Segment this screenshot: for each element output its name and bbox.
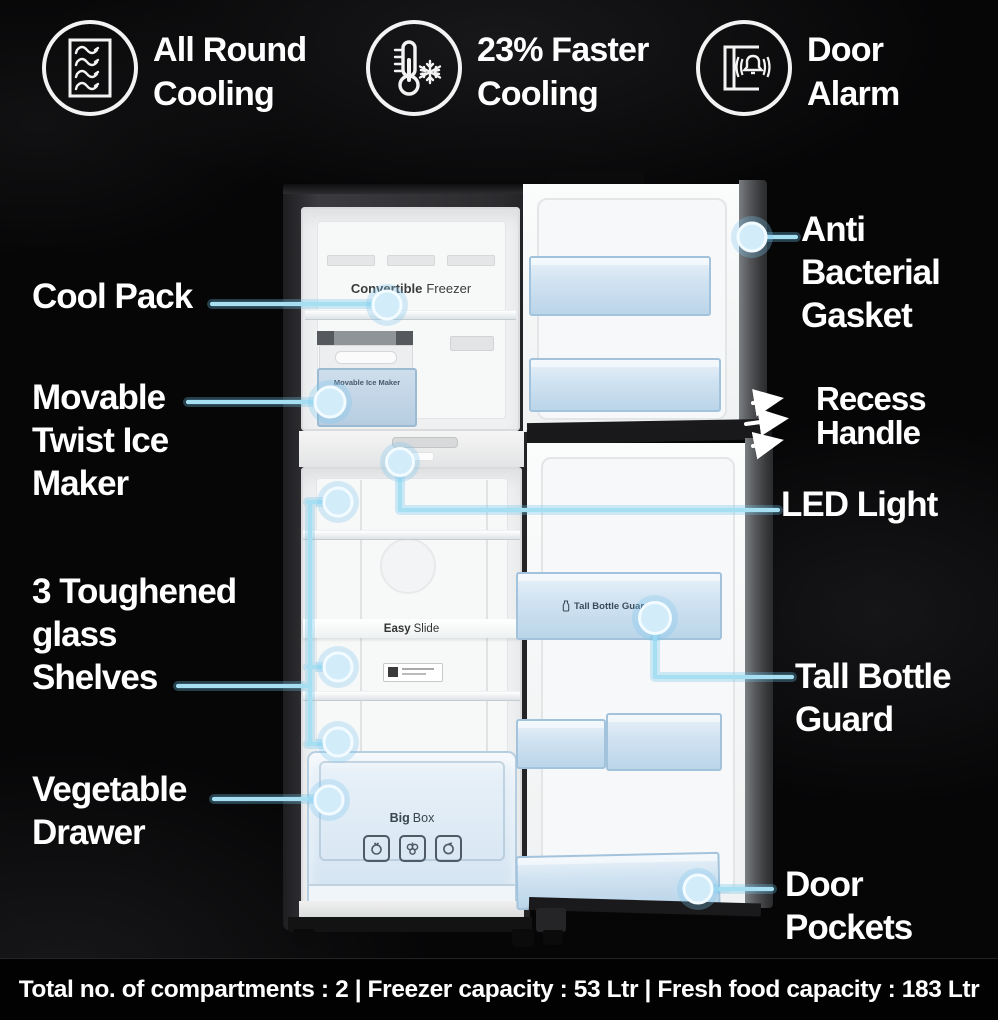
freezer-side-tray (450, 336, 494, 351)
energy-sticker (383, 663, 443, 682)
feature-line: All Round (153, 28, 306, 72)
freezer-door-gasket-edge (739, 180, 767, 434)
callout-line: Maker (32, 462, 168, 505)
drawer-icons-row (309, 835, 515, 862)
feature-line: Alarm (807, 72, 899, 116)
door-alarm-icon (696, 20, 792, 116)
feature-label: Door Alarm (807, 20, 899, 116)
tomato-icon (363, 835, 390, 862)
callout-vegetable-drawer: Vegetable Drawer (32, 768, 186, 854)
fan-cover (380, 538, 436, 594)
callout-line: Cool Pack (32, 275, 192, 318)
ice-maker-label: Movable Ice Maker (334, 378, 400, 387)
feature-label: All Round Cooling (153, 20, 306, 116)
callout-tall-bottle-guard: Tall Bottle Guard (795, 655, 951, 741)
tall-bottle-guard-print: Tall Bottle Guard (562, 600, 650, 612)
ice-maker-handle (335, 351, 397, 364)
feature-line: Cooling (153, 72, 306, 116)
ice-maker-tray: Movable Ice Maker (317, 368, 417, 427)
callout-line: Drawer (32, 811, 186, 854)
convertible-freezer-label: ConvertibleFreezer (306, 281, 516, 296)
fridge-door-gasket-edge (745, 438, 773, 908)
orange-icon (435, 835, 462, 862)
freezer-vent (447, 255, 495, 266)
glass-shelf-3 (303, 691, 520, 701)
fridge-door-open (527, 443, 747, 905)
tall-bottle-guard-pocket: Tall Bottle Guard (516, 572, 722, 640)
callout-line: Door (785, 863, 912, 906)
callout-line: Tall Bottle (795, 655, 951, 698)
ice-maker-frame-corner (317, 331, 334, 345)
feature-all-round-cooling: All Round Cooling (42, 20, 306, 116)
callout-line: Gasket (801, 294, 940, 337)
callout-line: glass (32, 613, 236, 656)
vegetable-drawer: BigBox (307, 751, 517, 906)
airflow-grid-icon (42, 20, 138, 116)
ice-maker-frame-corner (396, 331, 413, 345)
callout-line: Shelves (32, 656, 236, 699)
feature-line: Cooling (477, 72, 649, 116)
callout-line: LED Light (781, 483, 937, 526)
callout-line: Vegetable (32, 768, 186, 811)
easy-slide-label-bold: Easy (384, 623, 411, 635)
thermometer-snowflake-icon (366, 20, 462, 116)
feature-label: 23% Faster Cooling (477, 20, 649, 116)
glass-shelf-1 (303, 530, 520, 540)
door-hinge-bottom (536, 908, 566, 932)
spec-summary-text: Total no. of compartments : 2 | Freezer … (19, 976, 980, 1004)
ice-maker: Movable Ice Maker (317, 331, 413, 425)
callout-line: Bacterial (801, 251, 940, 294)
spec-summary-bar: Total no. of compartments : 2 | Freezer … (0, 958, 998, 1020)
callout-line: Handle (816, 416, 926, 450)
fridge-foot (293, 929, 315, 947)
easy-slide-shelf: EasySlide (303, 619, 520, 638)
callout-anti-bacterial-gasket: Anti Bacterial Gasket (801, 208, 940, 337)
freezer-shelf (305, 310, 516, 320)
shelf-rail (486, 480, 488, 752)
feature-door-alarm: Door Alarm (696, 20, 899, 116)
bottle-icon (562, 600, 570, 612)
callout-line: Pockets (785, 906, 912, 949)
callout-line: Movable (32, 376, 168, 419)
easy-slide-label: Slide (414, 623, 440, 635)
callout-movable-twist-ice-maker: Movable Twist Ice Maker (32, 376, 168, 505)
ice-maker-body (319, 345, 413, 369)
callout-door-pockets: Door Pockets (785, 863, 912, 949)
fridge-foot (512, 929, 534, 947)
feature-line: 23% Faster (477, 28, 649, 72)
door-foot (543, 930, 563, 945)
sticker-line (402, 668, 434, 670)
feature-line: Door (807, 28, 899, 72)
callout-cool-pack: Cool Pack (32, 275, 192, 318)
shelf-rail (360, 480, 362, 752)
freezer-vent (387, 255, 435, 266)
big-box-label-bold: Big (390, 811, 410, 825)
freezer-door-bin (529, 358, 721, 412)
grapes-icon (399, 835, 426, 862)
callout-led-light: LED Light (781, 483, 937, 526)
callout-line: 3 Toughened (32, 570, 236, 613)
fridge-door-panel (541, 457, 735, 893)
callout-line: Anti (801, 208, 940, 251)
callout-recess-handle: Recess Handle (816, 382, 926, 450)
big-box-label-rest: Box (413, 811, 435, 825)
callout-line: Twist Ice (32, 419, 168, 462)
feature-faster-cooling: 23% Faster Cooling (366, 20, 649, 116)
fridge-feature-infographic: All Round Cooling (0, 0, 998, 1020)
fridge-door-bin (516, 719, 606, 769)
freezer-vent (327, 255, 375, 266)
callout-line: Recess (816, 382, 926, 416)
callout-line: Guard (795, 698, 951, 741)
fridge-door-bin (606, 713, 722, 771)
led-light-strip (386, 452, 434, 461)
cabinet-base (288, 917, 532, 932)
callout-toughened-glass-shelves: 3 Toughened glass Shelves (32, 570, 236, 699)
tall-bottle-guard-label: Tall Bottle Guard (574, 601, 650, 612)
freezer-door-bin (529, 256, 711, 316)
big-box-label: BigBox (309, 811, 515, 825)
sticker-mark (388, 667, 398, 677)
divider-handle (392, 437, 458, 448)
sticker-line (402, 673, 426, 675)
